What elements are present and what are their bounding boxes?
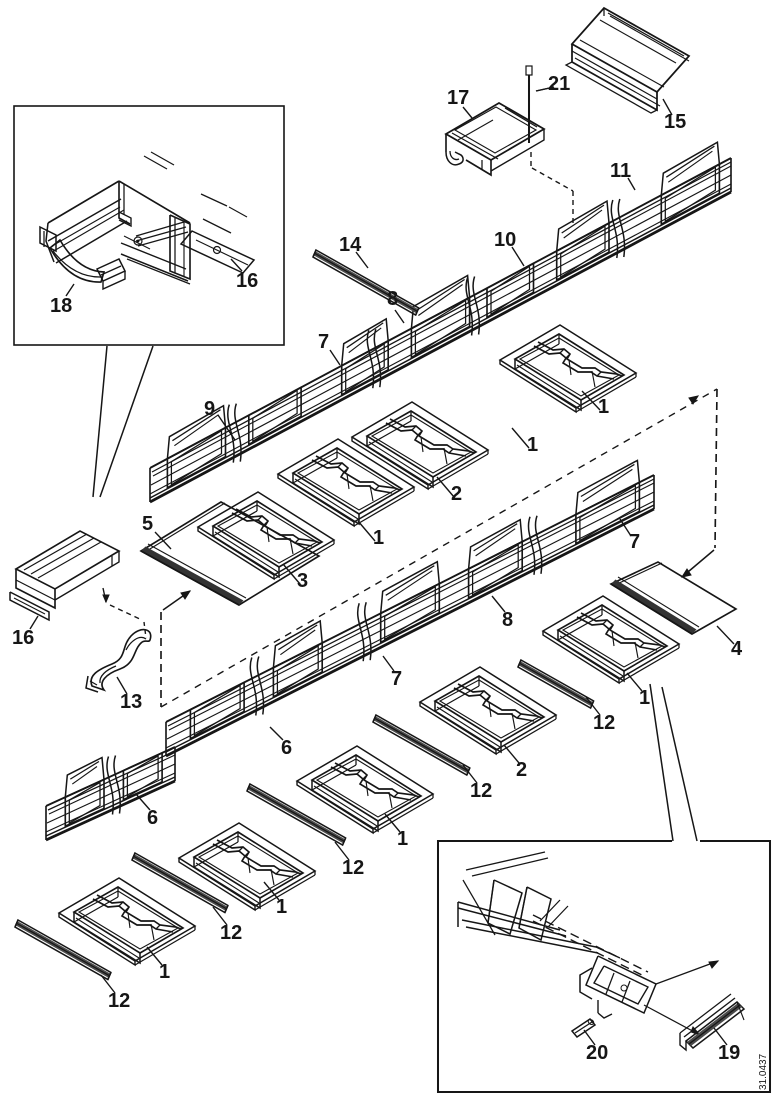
svg-text:8: 8 xyxy=(387,288,398,310)
svg-text:16: 16 xyxy=(12,627,34,649)
svg-text:2: 2 xyxy=(451,483,462,505)
svg-text:8: 8 xyxy=(502,609,513,631)
svg-text:12: 12 xyxy=(220,922,242,944)
svg-text:12: 12 xyxy=(342,857,364,879)
svg-text:12: 12 xyxy=(470,780,492,802)
svg-text:12: 12 xyxy=(593,712,615,734)
svg-text:13: 13 xyxy=(120,691,142,713)
svg-text:1: 1 xyxy=(373,527,384,549)
svg-text:19: 19 xyxy=(718,1042,740,1064)
svg-text:15: 15 xyxy=(664,111,686,133)
svg-text:18: 18 xyxy=(50,295,72,317)
svg-text:1: 1 xyxy=(527,434,538,456)
svg-text:1: 1 xyxy=(598,396,609,418)
svg-text:21: 21 xyxy=(548,73,570,95)
svg-text:20: 20 xyxy=(586,1042,608,1064)
svg-text:9: 9 xyxy=(204,398,215,420)
svg-text:3: 3 xyxy=(297,570,308,592)
svg-text:14: 14 xyxy=(339,234,362,256)
svg-text:7: 7 xyxy=(391,668,402,690)
svg-text:4: 4 xyxy=(731,638,743,660)
svg-text:7: 7 xyxy=(318,331,329,353)
svg-text:17: 17 xyxy=(447,87,469,109)
svg-text:6: 6 xyxy=(147,807,158,829)
svg-text:5: 5 xyxy=(142,513,153,535)
svg-text:16: 16 xyxy=(236,270,258,292)
svg-text:12: 12 xyxy=(108,990,130,1012)
svg-text:31.0437: 31.0437 xyxy=(758,1053,769,1090)
